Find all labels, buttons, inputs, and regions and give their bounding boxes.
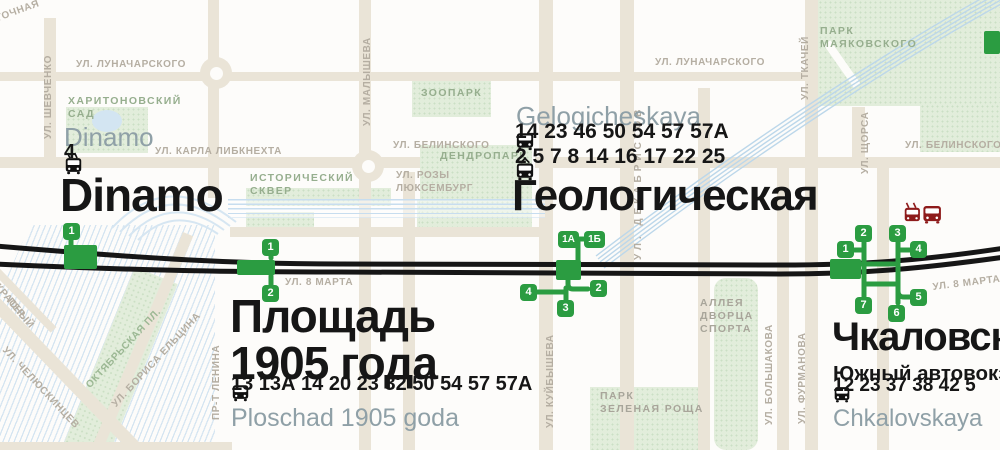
station-translit: Ploschad 1905 goda	[231, 404, 459, 433]
exit-badge: 1А	[558, 231, 579, 248]
tram-route-numbers: 2 5 7 8 14 16 17 22 25	[515, 145, 725, 169]
station-name: Чкаловская	[832, 317, 1000, 358]
trolleybus-route-numbers: 4	[64, 141, 75, 164]
station-translit: Chkalovskaya	[833, 405, 982, 433]
exit-badge: 1	[837, 241, 854, 258]
bus-route-numbers: 12 23 37 38 42 5	[833, 375, 976, 397]
exit-badge: 1	[63, 223, 80, 240]
exit-badge: 4	[910, 241, 927, 258]
exit-badge: 1	[262, 239, 279, 256]
exit-badge: 7	[855, 297, 872, 314]
metro-map: ВОСТОЧНАЯ УЛ. ШЕВЧЕНКО УЛ. ЛУНАЧАРСКОГО …	[0, 0, 1000, 450]
exit-badge: 5	[910, 289, 927, 306]
bus-route-numbers: 13 13А 14 20 23 32 50 54 57 57А	[231, 373, 532, 396]
station-name: Dinamo	[60, 172, 223, 219]
exit-badge: 2	[590, 280, 607, 297]
station-name: Геологическая	[512, 174, 818, 219]
exit-badge: 4	[520, 284, 537, 301]
exit-badge: 2	[855, 225, 872, 242]
exit-badge: 1Б	[584, 231, 605, 248]
exit-badge: 3	[557, 300, 574, 317]
station-translit: Dinamo	[64, 122, 154, 153]
bus-route-numbers: 14 23 46 50 54 57 57А	[515, 120, 729, 144]
exit-badge: 3	[889, 225, 906, 242]
